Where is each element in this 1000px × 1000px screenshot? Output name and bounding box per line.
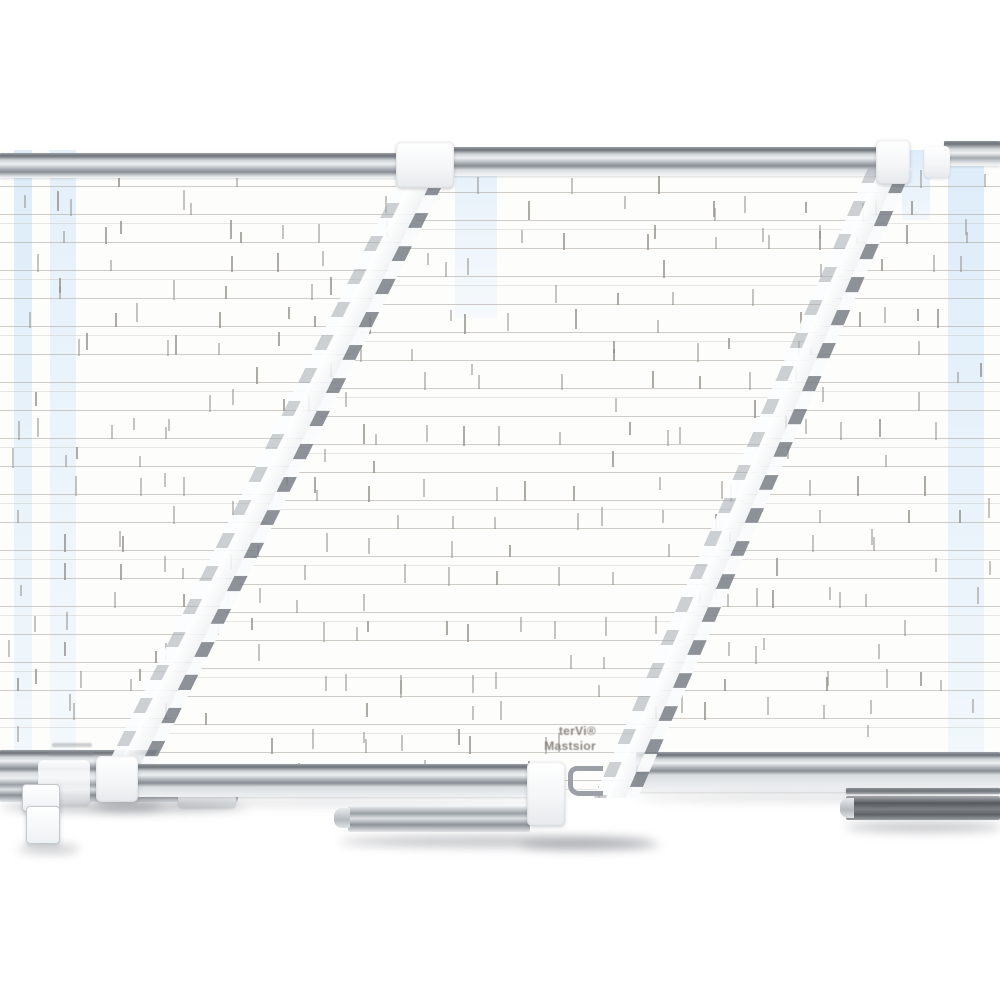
grid-tick: [879, 419, 881, 437]
front-board-logo-line2: Mastsior: [522, 739, 596, 754]
front-tray-end-curl: [334, 808, 350, 828]
grid-tick: [755, 646, 757, 664]
grid-tick: [612, 572, 614, 586]
grid-tick: [819, 510, 821, 524]
grid-tick: [977, 587, 979, 604]
grid-tick: [697, 343, 699, 362]
grid-tick: [520, 617, 522, 633]
grid-tick: [768, 235, 770, 250]
blue-tint-stripe: [948, 150, 984, 784]
grid-tick: [561, 374, 563, 389]
grid-tick: [115, 313, 117, 328]
grid-tick: [111, 425, 113, 440]
grid-tick: [762, 228, 764, 242]
grid-tick: [805, 202, 807, 213]
grid-tick: [657, 320, 659, 333]
grid-tick: [727, 594, 729, 607]
grid-tick: [924, 476, 926, 496]
grid-tick: [37, 418, 39, 437]
grid-tick: [330, 277, 332, 295]
grid-tick: [120, 221, 122, 234]
grid-tick: [721, 481, 723, 499]
grid-tick: [258, 644, 260, 660]
grid-tick: [446, 621, 448, 636]
grid-tick: [980, 363, 982, 376]
grid-tick: [173, 506, 175, 524]
grid-tick: [917, 309, 919, 321]
grid-tick: [76, 447, 78, 460]
grid-tick: [920, 170, 922, 188]
grid-tick: [57, 191, 59, 210]
grid-tick: [829, 587, 831, 599]
grid-tick: [575, 309, 577, 328]
grid-tick: [452, 516, 454, 529]
grid-tick: [933, 255, 935, 272]
grid-tick: [397, 515, 399, 530]
grid-tick: [756, 588, 758, 607]
right-board-tray-rail: [846, 788, 1000, 794]
grid-tick: [282, 225, 284, 240]
grid-tick: [404, 564, 406, 584]
grid-tick: [240, 232, 242, 244]
grid-tick: [225, 286, 227, 300]
grid-tick: [471, 364, 473, 375]
grid-tick: [500, 701, 502, 720]
grid-tick: [477, 177, 479, 194]
grid-tick: [175, 335, 177, 354]
grid-tick: [63, 231, 65, 243]
grid-tick: [368, 486, 370, 501]
grid-tick: [69, 694, 71, 711]
grid-tick: [256, 367, 258, 384]
grid-tick: [34, 616, 36, 632]
grid-tick: [577, 513, 579, 530]
grid-tick: [904, 620, 906, 636]
grid-tick: [288, 307, 290, 320]
grid-tick: [704, 702, 706, 719]
grid-tick: [458, 729, 460, 746]
grid-tick: [35, 392, 37, 407]
grid-tick: [679, 427, 681, 444]
grid-tick: [826, 677, 828, 691]
grid-tick: [368, 538, 370, 554]
grid-tick: [78, 339, 80, 355]
grid-tick: [122, 536, 124, 552]
grid-tick: [881, 259, 883, 272]
grid-tick: [130, 679, 132, 691]
grid-tick: [114, 592, 116, 607]
grid-tick: [183, 477, 185, 496]
grid-tick: [494, 517, 496, 529]
shadow: [18, 845, 80, 853]
back-right-board-top-cap: [924, 146, 950, 178]
grid-tick: [312, 729, 314, 748]
grid-tick: [17, 510, 19, 523]
grid-tick: [839, 592, 841, 608]
grid-tick: [886, 669, 888, 688]
grid-tick: [984, 174, 986, 188]
grid-tick: [601, 507, 603, 526]
grid-tick: [613, 349, 615, 361]
grid-tick: [865, 594, 867, 607]
grid-tick: [605, 617, 607, 635]
grid-tick: [570, 655, 572, 670]
grid-tick: [668, 544, 670, 558]
grid-tick: [663, 260, 665, 278]
grid-tick: [183, 594, 185, 608]
grid-tick: [139, 456, 141, 468]
grid-tick: [232, 389, 234, 406]
grid-tick: [133, 418, 135, 430]
grid-tick: [870, 700, 872, 714]
grid-tick: [918, 341, 920, 356]
grid-tick: [957, 372, 959, 383]
grid-tick: [652, 371, 654, 388]
grid-tick: [496, 487, 498, 501]
grid-tick: [812, 535, 814, 552]
grid-tick: [959, 510, 961, 524]
grid-tick: [772, 590, 774, 607]
back-right-board-top-rail: [944, 141, 1000, 166]
front-board-marker-tray: [348, 806, 530, 832]
grid-tick: [445, 262, 447, 277]
grid-tick: [724, 679, 726, 691]
grid-tick: [972, 699, 974, 712]
grid-tick: [960, 256, 962, 272]
grid-tick: [524, 481, 526, 500]
grid-tick: [296, 600, 298, 613]
grid-tick: [935, 422, 937, 439]
grid-tick: [373, 461, 375, 473]
grid-tick: [451, 541, 453, 558]
grid-tick: [271, 738, 273, 754]
grid-tick: [603, 657, 605, 670]
grid-tick: [314, 316, 316, 327]
grid-tick: [752, 289, 754, 306]
grid-tick: [859, 312, 861, 327]
grid-tick: [12, 448, 14, 468]
back-left-board-top-rail: [0, 153, 434, 178]
grid-tick: [823, 705, 825, 720]
grid-tick: [70, 199, 72, 216]
grid-tick: [767, 697, 769, 715]
grid-tick: [423, 479, 425, 497]
grid-tick: [136, 303, 138, 322]
grid-tick: [18, 421, 20, 440]
grid-tick: [110, 260, 112, 271]
front-board-corner-cap-top-left: [396, 142, 454, 188]
grid-tick: [259, 588, 261, 603]
grid-tick: [140, 478, 142, 496]
grid-tick: [120, 564, 122, 580]
grid-tick: [86, 333, 88, 349]
grid-tick: [728, 642, 730, 655]
grid-tick: [554, 621, 556, 639]
grid-tick: [647, 234, 649, 249]
frame-corner-bracket: [568, 766, 603, 796]
grid-tick: [345, 674, 347, 691]
grid-tick: [612, 451, 614, 467]
grid-tick: [629, 422, 631, 435]
product-photo: terVi® Mastsior: [0, 0, 1000, 1000]
grid-tick: [20, 585, 22, 596]
grid-tick: [467, 624, 469, 642]
grid-tick: [365, 739, 367, 753]
front-board-logo-line1: terVi®: [522, 724, 596, 739]
grid-tick: [322, 251, 324, 266]
grid-tick: [29, 312, 31, 328]
grid-tick: [472, 675, 474, 693]
grid-tick: [495, 672, 497, 688]
left-board-logo-smudge: [52, 743, 92, 747]
grid-tick: [37, 254, 39, 272]
grid-tick: [617, 293, 619, 305]
grid-tick: [840, 422, 842, 440]
grid-tick: [323, 622, 325, 642]
grid-tick: [325, 676, 327, 691]
grid-tick: [375, 434, 377, 445]
grid-tick: [940, 680, 942, 691]
grid-tick: [64, 563, 66, 580]
grid-tick: [209, 395, 211, 412]
grid-tick: [659, 477, 661, 490]
grid-tick: [966, 232, 968, 243]
blue-tint-stripe: [50, 150, 76, 784]
grid-tick: [555, 285, 557, 302]
grid-tick: [819, 231, 821, 250]
grid-tick: [744, 196, 746, 213]
grid-tick: [884, 307, 886, 323]
grid-tick: [906, 225, 908, 244]
grid-tick: [8, 640, 10, 657]
grid-tick: [427, 253, 429, 265]
grid-tick: [989, 561, 991, 575]
grid-tick: [988, 498, 990, 518]
grid-tick: [509, 545, 511, 557]
grid-tick: [311, 284, 313, 299]
grid-tick: [219, 312, 221, 328]
grid-tick: [24, 195, 26, 209]
grid-tick: [424, 372, 426, 390]
front-board-logo: terVi® Mastsior: [522, 724, 596, 754]
grid-tick: [809, 480, 811, 496]
grid-tick: [231, 256, 233, 272]
grid-tick: [478, 375, 480, 390]
back-right-board-bottom-rail: [636, 752, 1000, 792]
grid-tick: [59, 286, 61, 300]
grid-tick: [411, 349, 413, 361]
grid-tick: [401, 735, 403, 752]
grid-tick: [366, 703, 368, 717]
right-tray-end-curl: [840, 798, 854, 818]
grid-tick: [363, 594, 365, 611]
grid-tick: [17, 726, 19, 742]
grid-tick: [498, 426, 500, 446]
grid-tick: [65, 455, 67, 468]
grid-tick: [165, 427, 167, 439]
shadow: [845, 822, 1000, 832]
grid-tick: [857, 476, 859, 496]
grid-tick: [867, 725, 869, 737]
grid-tick: [64, 534, 66, 552]
grid-tick: [521, 230, 523, 244]
grid-tick: [472, 706, 474, 720]
shadow: [636, 794, 996, 801]
grid-tick: [496, 571, 498, 586]
front-board-corner-cap-top-right: [876, 140, 910, 184]
grid-tick: [935, 558, 937, 571]
grid-tick: [920, 672, 922, 686]
grid-tick: [805, 419, 807, 433]
grid-tick: [400, 680, 402, 697]
left-board-logo-smudge: [48, 751, 94, 756]
grid-tick: [326, 533, 328, 552]
grid-tick: [64, 642, 66, 656]
grid-tick: [573, 486, 575, 501]
grid-tick: [164, 473, 166, 487]
grid-tick: [822, 387, 824, 402]
grid-tick: [450, 310, 452, 321]
grid-tick: [277, 253, 279, 272]
grid-tick: [318, 224, 320, 243]
grid-tick: [467, 258, 469, 275]
grid-tick: [230, 220, 232, 239]
grid-tick: [885, 455, 887, 468]
grid-tick: [190, 203, 192, 215]
grid-tick: [878, 644, 880, 659]
grid-tick: [251, 618, 253, 630]
grid-tick: [167, 340, 169, 356]
grid-tick: [763, 638, 765, 650]
grid-tick: [559, 432, 561, 445]
grid-tick: [873, 537, 875, 552]
grid-tick: [205, 713, 207, 725]
grid-tick: [80, 671, 82, 688]
grid-tick: [776, 558, 778, 576]
grid-tick: [658, 175, 660, 194]
front-board-bottom-rail: [102, 764, 562, 797]
grid-tick: [66, 612, 68, 630]
grid-tick: [164, 556, 166, 572]
grid-tick: [714, 208, 716, 222]
grid-tick: [119, 531, 121, 547]
wall-mount-clip-lower: [26, 806, 60, 844]
grid-tick: [624, 196, 626, 209]
grid-tick: [937, 309, 939, 328]
grid-tick: [754, 400, 756, 418]
grid-tick: [672, 292, 674, 305]
grid-tick: [278, 332, 280, 346]
grid-tick: [655, 616, 657, 634]
front-board-corner-cap-bottom-left: [96, 756, 138, 802]
grid-tick: [463, 426, 465, 446]
shadow: [105, 799, 555, 806]
grid-tick: [304, 565, 306, 579]
grid-tick: [464, 314, 466, 334]
grid-tick: [105, 227, 107, 244]
grid-tick: [356, 627, 358, 642]
grid-tick: [749, 372, 751, 389]
front-tray-end-cap: [527, 762, 565, 826]
grid-tick: [324, 449, 326, 463]
shadow: [340, 836, 652, 847]
grid-tick: [367, 621, 369, 633]
grid-tick: [908, 510, 910, 523]
grid-tick: [667, 430, 669, 446]
grid-tick: [75, 476, 77, 496]
grid-tick: [558, 567, 560, 585]
grid-tick: [168, 419, 170, 432]
grid-tick: [615, 398, 617, 412]
grid-tick: [139, 669, 141, 681]
grid-tick: [728, 338, 730, 349]
grid-tick: [17, 678, 19, 691]
grid-tick: [218, 343, 220, 355]
grid-tick: [182, 568, 184, 579]
grid-tick: [507, 313, 509, 331]
grid-tick: [469, 736, 471, 754]
grid-tick: [316, 490, 318, 501]
grid-tick: [918, 392, 920, 411]
grid-tick: [528, 201, 530, 220]
grid-tick: [715, 237, 717, 249]
grid-tick: [662, 510, 664, 523]
grid-tick: [35, 669, 37, 684]
grid-tick: [345, 392, 347, 407]
grid-tick: [183, 190, 185, 209]
front-board-top-rail: [434, 147, 888, 176]
grid-tick: [911, 201, 913, 216]
grid-tick: [155, 651, 157, 663]
grid-tick: [363, 424, 365, 443]
grid-tick: [563, 233, 565, 250]
grid-tick: [598, 685, 600, 697]
grid-tick: [448, 567, 450, 585]
grid-tick: [426, 425, 428, 442]
grid-tick: [73, 703, 75, 720]
grid-tick: [699, 376, 701, 389]
grid-tick: [654, 225, 656, 239]
grid-tick: [571, 178, 573, 194]
